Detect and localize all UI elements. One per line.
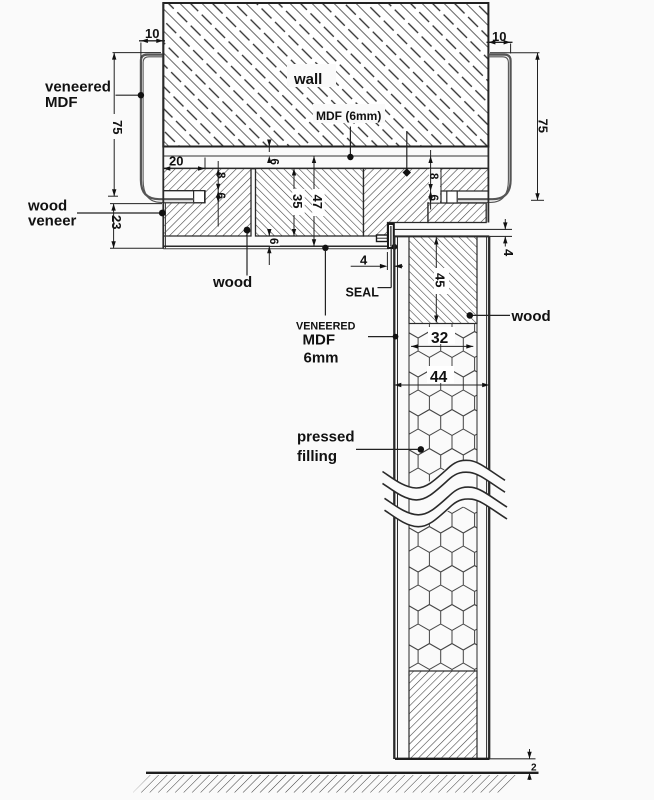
svg-text:45: 45 bbox=[433, 273, 448, 287]
svg-text:6: 6 bbox=[268, 159, 280, 165]
svg-text:20: 20 bbox=[169, 154, 183, 169]
svg-text:8: 8 bbox=[214, 172, 226, 179]
svg-text:4: 4 bbox=[501, 249, 516, 257]
svg-text:75: 75 bbox=[536, 119, 551, 133]
svg-text:35: 35 bbox=[290, 194, 305, 208]
svg-text:wood: wood bbox=[511, 308, 551, 325]
svg-text:75: 75 bbox=[110, 120, 125, 134]
svg-text:4: 4 bbox=[360, 253, 368, 268]
svg-text:wood: wood bbox=[212, 274, 252, 291]
svg-text:44: 44 bbox=[430, 369, 448, 386]
svg-text:6: 6 bbox=[214, 193, 226, 199]
svg-text:6: 6 bbox=[267, 238, 279, 244]
svg-text:23: 23 bbox=[109, 215, 124, 229]
svg-text:2: 2 bbox=[531, 763, 537, 774]
svg-text:veneer: veneer bbox=[28, 213, 77, 230]
svg-text:10: 10 bbox=[145, 26, 159, 41]
svg-text:47: 47 bbox=[310, 195, 325, 209]
svg-text:6: 6 bbox=[427, 195, 439, 201]
svg-text:32: 32 bbox=[431, 330, 448, 347]
svg-text:MDF: MDF bbox=[303, 332, 336, 349]
svg-text:MDF: MDF bbox=[45, 94, 78, 111]
svg-text:6mm: 6mm bbox=[304, 350, 339, 367]
svg-text:8: 8 bbox=[427, 173, 439, 180]
svg-text:SEAL: SEAL bbox=[346, 285, 380, 299]
svg-text:10: 10 bbox=[492, 29, 506, 44]
svg-text:filling: filling bbox=[297, 448, 337, 465]
svg-text:pressed: pressed bbox=[297, 429, 355, 446]
